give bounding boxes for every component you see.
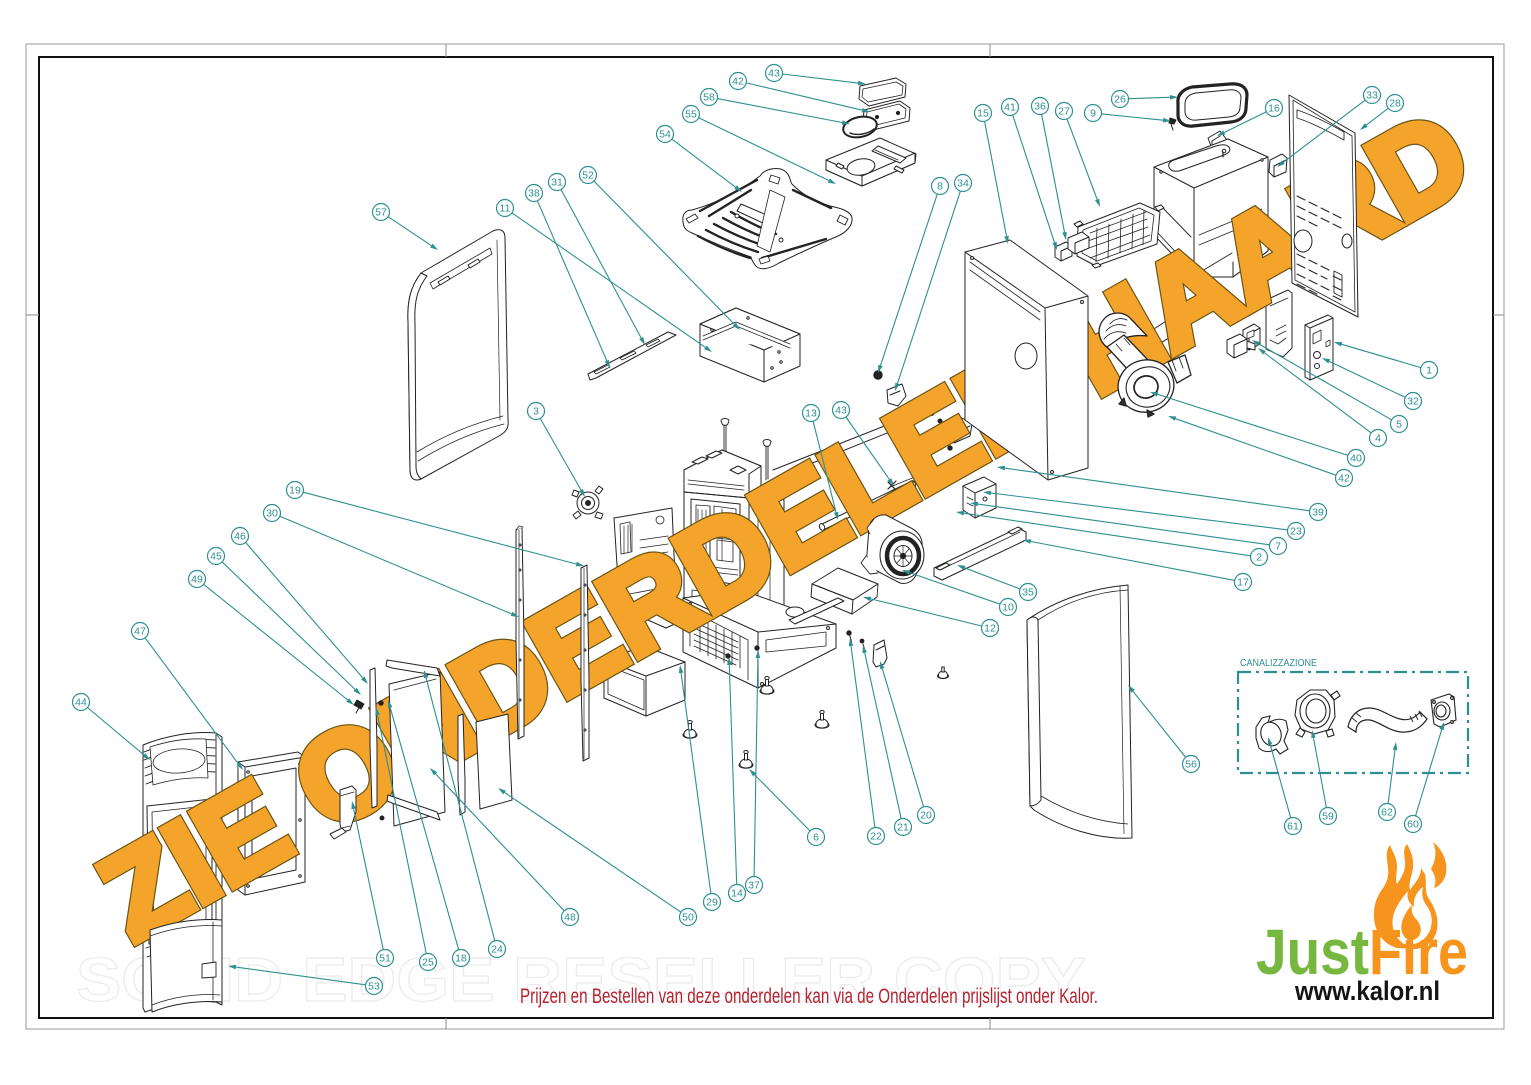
svg-text:62: 62 [1381, 807, 1393, 819]
svg-text:28: 28 [1389, 98, 1401, 110]
svg-text:21: 21 [897, 822, 909, 834]
svg-text:52: 52 [582, 170, 594, 182]
svg-text:47: 47 [134, 626, 146, 638]
svg-text:3: 3 [533, 406, 539, 418]
svg-text:29: 29 [706, 897, 718, 909]
svg-text:15: 15 [977, 108, 989, 120]
svg-text:1: 1 [1426, 365, 1432, 377]
svg-text:33: 33 [1366, 90, 1378, 102]
svg-text:59: 59 [1322, 811, 1334, 823]
svg-text:2: 2 [1256, 552, 1262, 564]
svg-text:8: 8 [937, 181, 943, 193]
svg-text:44: 44 [75, 697, 87, 709]
svg-text:54: 54 [659, 129, 671, 141]
svg-text:45: 45 [210, 551, 222, 563]
svg-text:13: 13 [805, 408, 817, 420]
svg-text:41: 41 [1004, 102, 1016, 114]
svg-text:37: 37 [748, 880, 760, 892]
svg-text:35: 35 [1022, 587, 1034, 599]
svg-text:38: 38 [528, 188, 540, 200]
svg-text:10: 10 [1002, 602, 1014, 614]
svg-text:40: 40 [1350, 453, 1362, 465]
svg-text:5: 5 [1396, 419, 1402, 431]
svg-text:12: 12 [984, 623, 996, 635]
svg-text:39: 39 [1312, 507, 1324, 519]
svg-text:CANALIZZAZIONE: CANALIZZAZIONE [1240, 657, 1317, 669]
svg-text:57: 57 [375, 207, 387, 219]
svg-text:55: 55 [685, 109, 697, 121]
svg-text:22: 22 [870, 831, 882, 843]
svg-text:7: 7 [1275, 541, 1281, 553]
svg-text:18: 18 [455, 953, 467, 965]
svg-text:42: 42 [732, 76, 744, 88]
svg-text:53: 53 [368, 981, 380, 993]
svg-text:36: 36 [1034, 101, 1046, 113]
svg-text:26: 26 [1114, 94, 1126, 106]
svg-text:58: 58 [703, 92, 715, 104]
svg-text:51: 51 [379, 953, 391, 965]
svg-text:43: 43 [835, 405, 847, 417]
svg-text:60: 60 [1407, 819, 1419, 831]
svg-text:14: 14 [731, 888, 743, 900]
svg-text:27: 27 [1058, 106, 1070, 118]
svg-text:30: 30 [266, 508, 278, 520]
svg-text:46: 46 [234, 531, 246, 543]
svg-text:56: 56 [1185, 759, 1197, 771]
svg-text:20: 20 [920, 810, 932, 822]
svg-text:23: 23 [1290, 526, 1302, 538]
svg-text:43: 43 [768, 68, 780, 80]
svg-text:17: 17 [1237, 577, 1249, 589]
svg-text:Prijzen en Bestellen van deze: Prijzen en Bestellen van deze onderdelen… [520, 984, 1098, 1008]
svg-text:25: 25 [422, 957, 434, 969]
svg-text:49: 49 [191, 574, 203, 586]
svg-text:16: 16 [1268, 103, 1280, 115]
svg-text:6: 6 [813, 832, 819, 844]
svg-text:48: 48 [564, 912, 576, 924]
svg-text:32: 32 [1407, 396, 1419, 408]
svg-text:31: 31 [551, 177, 563, 189]
svg-text:24: 24 [491, 944, 503, 956]
svg-text:www.kalor.nl: www.kalor.nl [1294, 976, 1440, 1006]
svg-text:42: 42 [1338, 473, 1350, 485]
svg-text:11: 11 [500, 203, 511, 215]
svg-text:19: 19 [289, 485, 301, 497]
svg-text:4: 4 [1375, 433, 1381, 445]
svg-text:50: 50 [682, 912, 694, 924]
svg-text:9: 9 [1090, 108, 1096, 120]
svg-text:61: 61 [1287, 821, 1299, 833]
svg-text:34: 34 [957, 178, 969, 190]
